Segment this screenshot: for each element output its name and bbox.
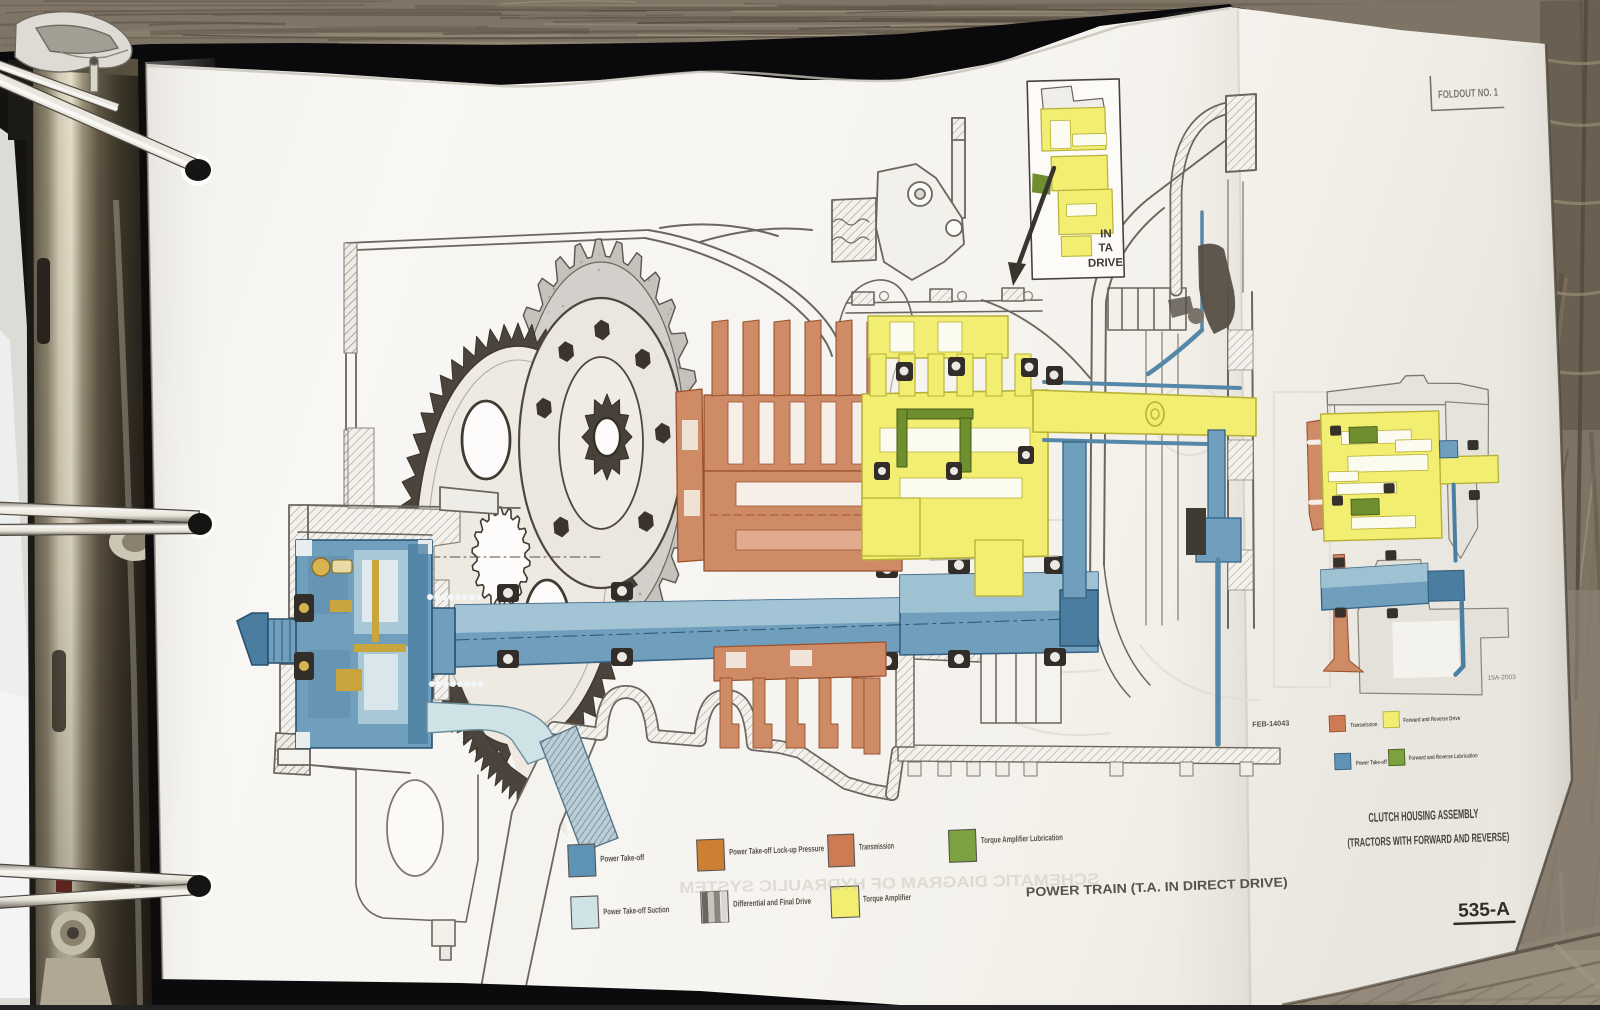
svg-text:Power Take-off: Power Take-off [1356, 760, 1388, 767]
svg-text:Transmission: Transmission [859, 840, 894, 851]
svg-text:DRIVE: DRIVE [1088, 257, 1124, 270]
svg-text:15A-2003: 15A-2003 [1488, 674, 1517, 682]
svg-text:FEB-14043: FEB-14043 [1252, 718, 1289, 728]
svg-text:Transmission: Transmission [1350, 722, 1377, 729]
svg-text:535-A: 535-A [1458, 899, 1511, 922]
svg-text:IN: IN [1100, 228, 1112, 240]
svg-text:Power Take-off: Power Take-off [600, 852, 644, 864]
svg-text:Torque Amplifier: Torque Amplifier [863, 892, 912, 904]
svg-text:TA: TA [1098, 242, 1113, 254]
